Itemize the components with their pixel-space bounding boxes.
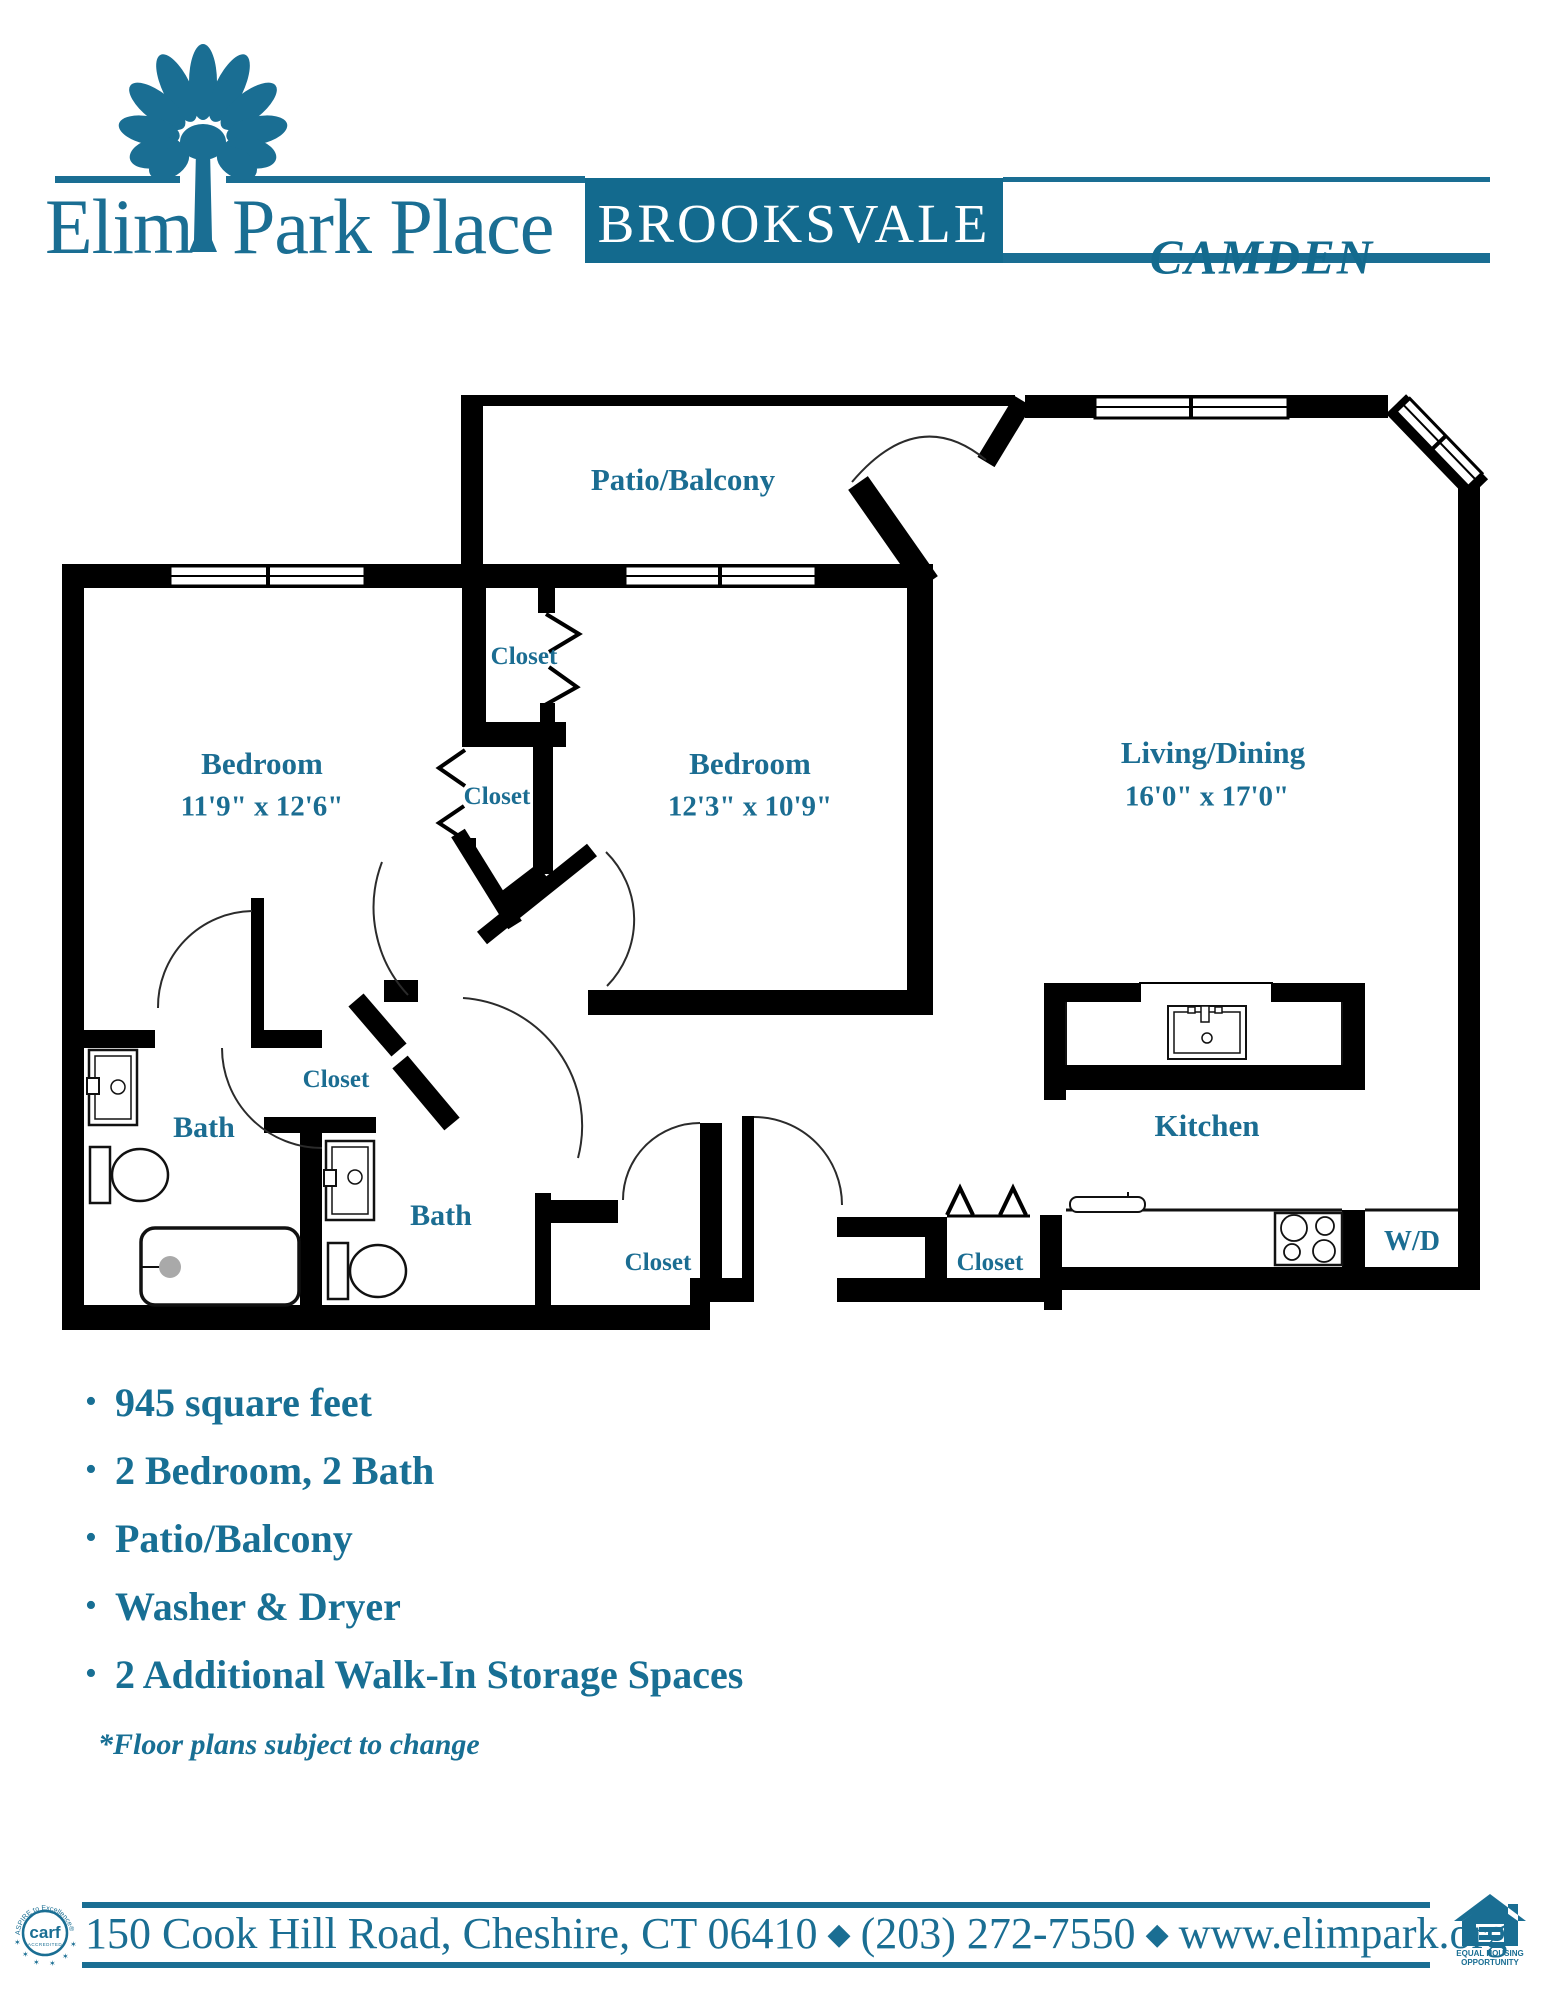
svg-text:✶: ✶ (33, 1958, 40, 1967)
feature-list: • 945 square feet • 2 Bedroom, 2 Bath • … (85, 1368, 743, 1708)
label-bath1: Bath (173, 1111, 235, 1145)
bullet-icon: • (85, 1519, 115, 1557)
wall-bedroom2-bottom (588, 990, 907, 1015)
feature-sqft: 945 square feet (115, 1379, 372, 1426)
label-bedroom2-dims: 12'3" x 10'9" (668, 791, 832, 824)
wall-bath1-top-b (264, 1030, 322, 1048)
patio-door-leaf (986, 401, 1023, 462)
feature-item: • Washer & Dryer (85, 1572, 743, 1640)
footer-address: 150 Cook Hill Road, Cheshire, CT 06410 (85, 1909, 818, 1958)
wall-hall-diagonal-a (356, 1000, 399, 1050)
diamond-separator-icon: ◆ (818, 1918, 861, 1951)
wall-bedroom1-door-jamb (251, 898, 264, 1048)
bifold-doors (439, 614, 1030, 1216)
kitchen-counter (1066, 1192, 1342, 1212)
wall-bedroom1-stub (384, 980, 418, 1002)
feature-storage: 2 Additional Walk-In Storage Spaces (115, 1651, 743, 1698)
eho-text-line2: OPPORTUNITY (1461, 1958, 1519, 1967)
equal-housing-opportunity-logo: EQUAL HOUSING OPPORTUNITY (1450, 1894, 1530, 1968)
carf-accredited: ACCREDITED (28, 1942, 63, 1947)
entry-door-arc (754, 1117, 842, 1205)
wall-bottom-left (62, 1305, 710, 1330)
wall-kitchen-lowband (1066, 1065, 1342, 1090)
wall-patio-top-thin (461, 395, 1015, 406)
bath1-toilet (90, 1147, 168, 1203)
kitchen-passthrough-counter (1140, 983, 1272, 1003)
wall-bath1-top-a (76, 1030, 155, 1048)
label-living: Living/Dining (1121, 735, 1305, 771)
diamond-separator-icon: ◆ (1136, 1918, 1179, 1951)
wall-kitchen-east-a (1342, 983, 1365, 1090)
closet-top-bifold-b (545, 667, 577, 705)
label-bedroom2: Bedroom (689, 746, 811, 782)
eho-house-icon (1454, 1894, 1526, 1946)
windows (170, 397, 1482, 1003)
label-bedroom1-dims: 11'9" x 12'6" (181, 791, 344, 824)
flyer-page: Elim Park Place BROOKSVALE CAMDEN (0, 0, 1545, 2000)
wall-bottom-mid-b (837, 1278, 1062, 1302)
label-wd: W/D (1384, 1226, 1440, 1258)
bath2-door-arc (463, 998, 582, 1158)
label-closet-mid: Closet (464, 783, 531, 811)
window-bedroom2 (625, 566, 816, 586)
bath2-toilet (328, 1243, 406, 1299)
feature-washer-dryer: Washer & Dryer (115, 1583, 401, 1630)
wall-closetA-east (700, 1123, 722, 1288)
window-bedroom1 (170, 566, 365, 586)
wall-patio-left (461, 395, 483, 588)
carf-wordmark: carf (29, 1923, 61, 1942)
wall-hall-diagonal-b (400, 1062, 452, 1124)
bath1-sink-vanity (87, 1050, 137, 1125)
closet-bottom-bifold-a (439, 750, 465, 786)
wall-kitchen-east-b (1342, 1210, 1365, 1267)
feature-bed-bath: 2 Bedroom, 2 Bath (115, 1447, 434, 1494)
footer-phone: (203) 272-7550 (861, 1909, 1136, 1958)
feature-item: • 945 square feet (85, 1368, 743, 1436)
bathtub (141, 1228, 299, 1305)
wall-kitchen-north-a (1044, 983, 1140, 1002)
wall-bedroom2-right (907, 588, 933, 1015)
wall-closet-divider (462, 588, 486, 732)
bullet-icon: • (85, 1587, 115, 1625)
wall-between-closets (462, 722, 566, 747)
label-closetB: Closet (957, 1249, 1024, 1277)
svg-text:✶: ✶ (49, 1959, 56, 1968)
wall-closet-top-jamb-a (538, 588, 555, 613)
label-closet-bath: Closet (303, 1066, 370, 1094)
disclaimer-note: *Floor plans subject to change (98, 1728, 480, 1762)
wall-closetA-top (535, 1200, 618, 1223)
wall-left-exterior (62, 564, 84, 1330)
feature-item: • 2 Bedroom, 2 Bath (85, 1436, 743, 1504)
feature-item: • Patio/Balcony (85, 1504, 743, 1572)
bullet-icon: • (85, 1451, 115, 1489)
label-patio: Patio/Balcony (591, 462, 775, 498)
label-kitchen: Kitchen (1154, 1108, 1259, 1144)
svg-text:✶: ✶ (14, 1938, 21, 1947)
wall-right-exterior (1458, 487, 1480, 1290)
hall-door-arc-left (374, 862, 408, 995)
bath2-sink-vanity (324, 1141, 374, 1220)
bullet-icon: • (85, 1383, 115, 1421)
stove (1275, 1213, 1342, 1265)
patio-door-arc (852, 437, 986, 482)
svg-text:✶: ✶ (70, 1940, 77, 1949)
label-bath2: Bath (410, 1199, 472, 1233)
wall-entry-jamb (742, 1116, 754, 1302)
svg-text:✶: ✶ (22, 1950, 29, 1959)
footer-rule-bottom (82, 1962, 1430, 1968)
wall-closetB-west (925, 1217, 947, 1288)
label-closet-top: Closet (491, 643, 558, 671)
bedroom1-door-arc (158, 911, 252, 1008)
closetB-bifold-a (947, 1188, 973, 1215)
wall-bottom-right (1044, 1267, 1480, 1290)
closetB-bifold-b (1000, 1188, 1026, 1215)
bullet-icon: • (85, 1655, 115, 1693)
bedroom2-door-arc (606, 852, 634, 986)
wall-bath-divider (300, 1124, 322, 1305)
window-diagonal (1396, 398, 1482, 486)
wall-closet-bottom-right (533, 747, 553, 874)
label-living-dims: 16'0" x 17'0" (1125, 781, 1289, 814)
label-bedroom1: Bedroom (201, 746, 323, 782)
wall-closetB-east (1040, 1215, 1062, 1288)
feature-item: • 2 Additional Walk-In Storage Spaces (85, 1640, 743, 1708)
footer-contact-line: 150 Cook Hill Road, Cheshire, CT 06410◆(… (85, 1908, 1445, 1959)
label-closetA: Closet (625, 1249, 692, 1277)
walls (62, 395, 1480, 1330)
svg-text:✶: ✶ (62, 1952, 69, 1961)
kitchen-sink (1066, 1002, 1342, 1065)
window-living (1095, 397, 1288, 418)
carf-accreditation-seal: ASPIRE to Excellence® carf ACCREDITED ✶✶… (12, 1899, 78, 1969)
closetA-door-arc (623, 1123, 700, 1200)
eho-text-line1: EQUAL HOUSING (1456, 1949, 1523, 1958)
feature-patio: Patio/Balcony (115, 1515, 353, 1562)
